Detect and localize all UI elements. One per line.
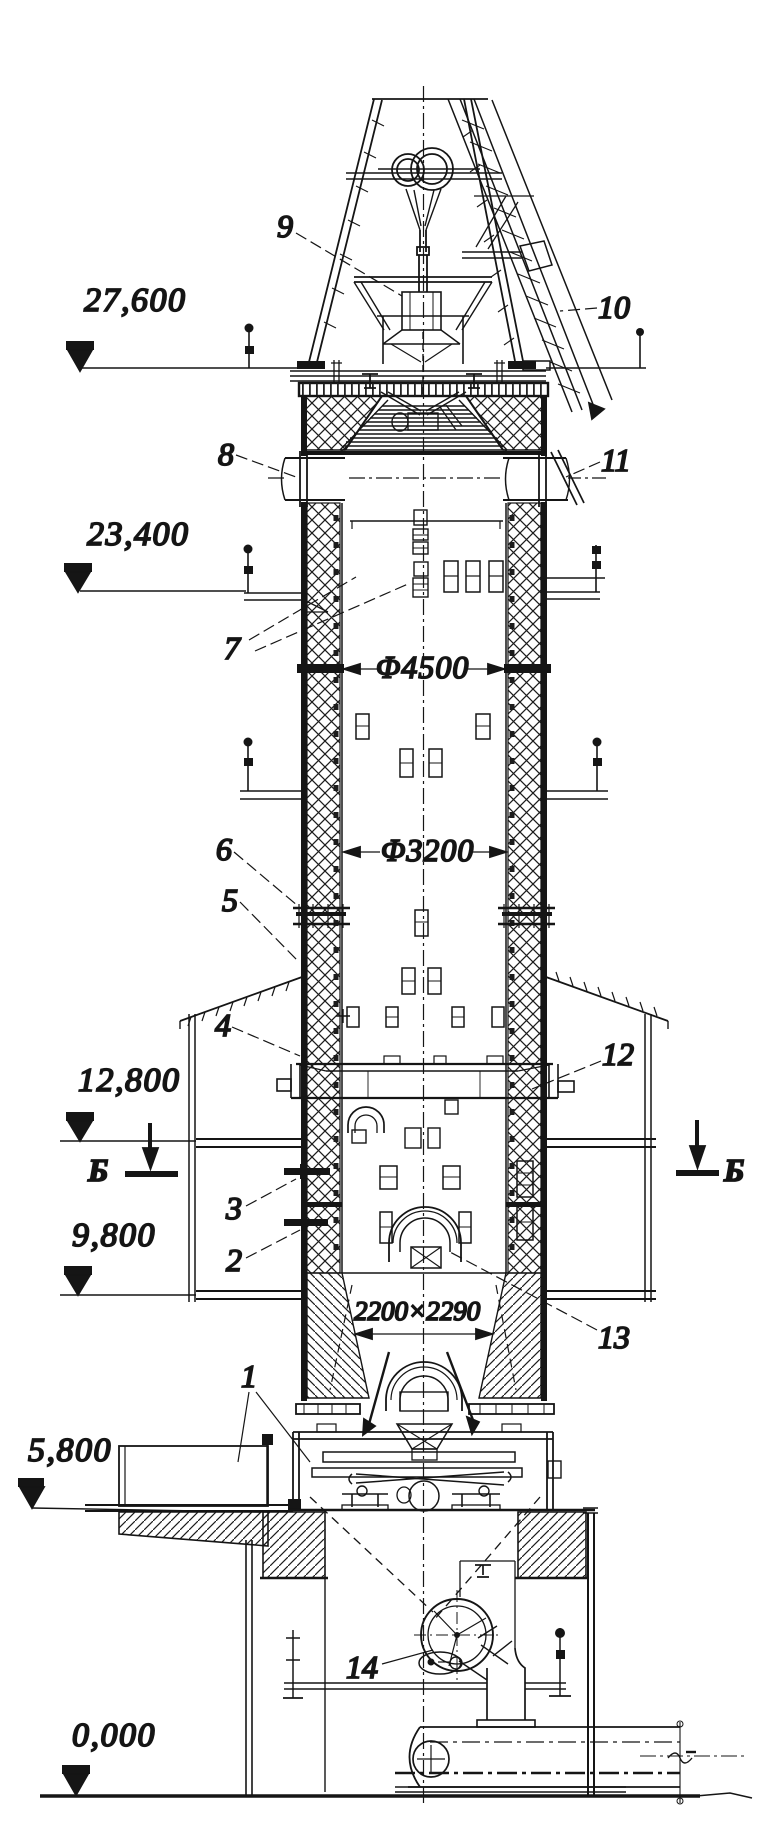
svg-text:11: 11 [601, 442, 631, 478]
svg-text:2: 2 [226, 1242, 242, 1278]
svg-text:9,800: 9,800 [72, 1217, 156, 1254]
svg-text:4: 4 [215, 1007, 231, 1043]
svg-text:23,400: 23,400 [87, 516, 190, 553]
svg-text:9: 9 [277, 208, 293, 244]
svg-text:3: 3 [225, 1190, 242, 1226]
svg-text:10: 10 [598, 289, 630, 325]
svg-text:Φ4500: Φ4500 [376, 649, 469, 685]
svg-text:14: 14 [346, 1649, 378, 1685]
svg-text:Б: Б [87, 1152, 108, 1188]
svg-text:13: 13 [598, 1319, 630, 1355]
svg-text:Б: Б [723, 1152, 744, 1188]
svg-text:12: 12 [602, 1036, 634, 1072]
svg-text:2200×2290: 2200×2290 [354, 1296, 481, 1326]
svg-text:7: 7 [224, 630, 242, 666]
svg-text:5,800: 5,800 [28, 1432, 112, 1469]
svg-text:5: 5 [222, 882, 238, 918]
svg-text:6: 6 [216, 831, 232, 867]
svg-text:0,000: 0,000 [72, 1717, 156, 1754]
svg-text:8: 8 [218, 436, 234, 472]
svg-text:12,800: 12,800 [78, 1062, 181, 1099]
svg-text:Φ3200: Φ3200 [381, 832, 474, 868]
svg-text:27,600: 27,600 [84, 282, 187, 319]
svg-text:1: 1 [241, 1358, 257, 1394]
